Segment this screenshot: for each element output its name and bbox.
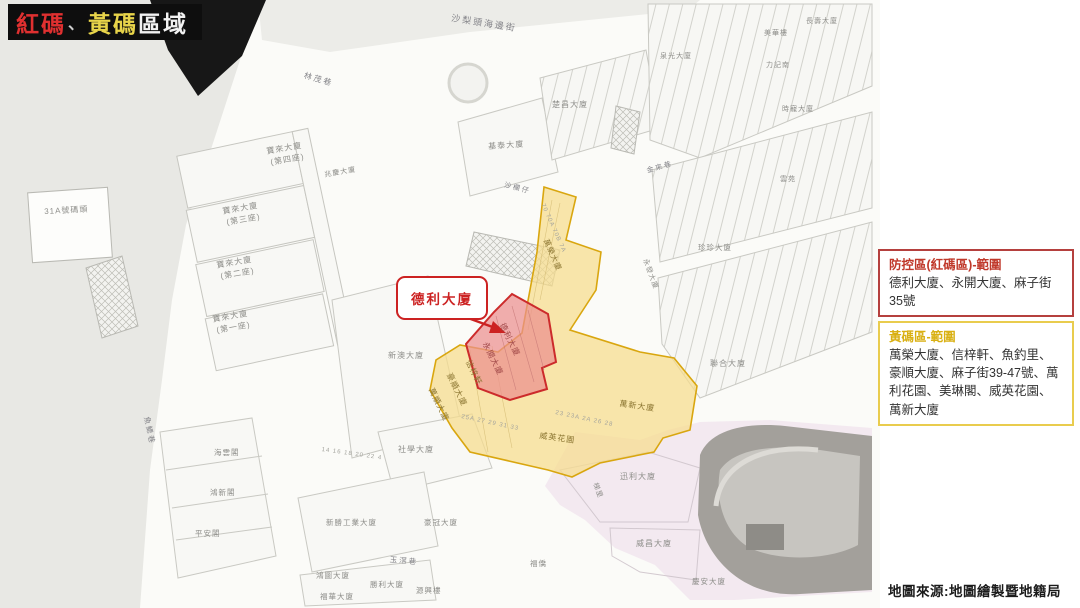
legend-yellow-box: 黃碼區-範圍 萬榮大廈、信梓軒、魚釣里、豪順大廈、麻子街39-47號、萬利花園、… [878,321,1074,426]
title-yellow-code: 黃碼 [88,5,138,39]
title-banner: 紅碼 、 黃碼 區域 [8,4,202,40]
legend-red-header: 防控區(紅碼區)-範圍 [889,256,1063,274]
parcel-blocks-east [648,4,872,398]
park-building [746,524,784,550]
building-callout: 德利大廈 [396,276,488,320]
screenshot-root: 沙梨頭海邊街林茂巷沙欄仔31A號碼頭寶來大廈(第四座)兆慶大廈寶來大廈(第三座)… [0,0,1080,608]
source-note: 地圖來源:地圖繪製暨地籍局 [888,580,1061,600]
legend-yellow-header: 黃碼區-範圍 [889,328,1063,346]
legend-red-box: 防控區(紅碼區)-範圍 德利大廈、永開大廈、麻子街35號 [878,249,1074,317]
legend-red-content: 德利大廈、永開大廈、麻子街35號 [889,274,1063,310]
legend-yellow-content: 萬榮大廈、信梓軒、魚釣里、豪順大廈、麻子街39-47號、萬利花園、美琳閣、威英花… [889,346,1063,419]
title-area-text: 區域 [138,5,188,39]
title-red-code: 紅碼 [16,5,66,39]
callout-label: 德利大廈 [411,288,473,308]
title-separator: 、 [68,10,86,34]
pier-31a [28,187,113,262]
roundabout [449,64,487,102]
